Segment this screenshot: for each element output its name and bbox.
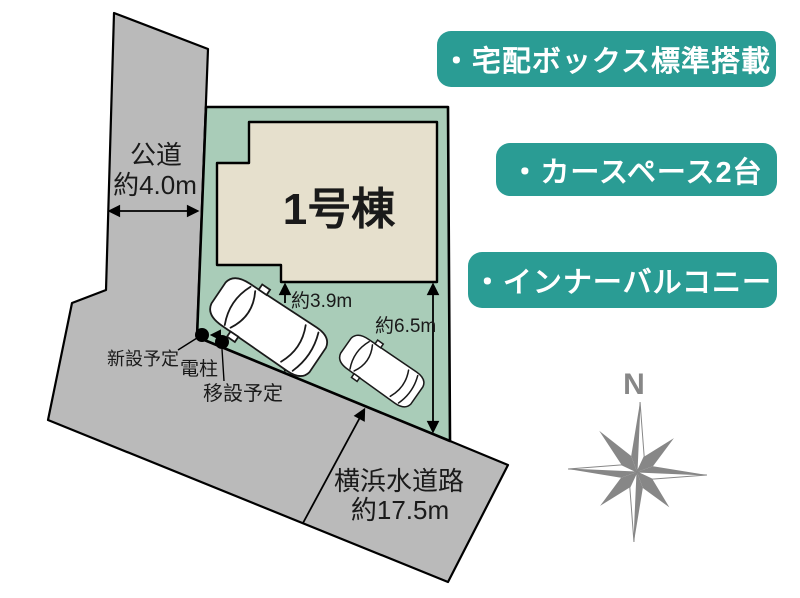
building-label: 1号棟	[283, 187, 395, 233]
feature-banner-car-space: ・カースペース2台	[496, 143, 777, 196]
compass-north-label: N	[623, 368, 645, 402]
feature-banner-label: ・宅配ボックス標準搭載	[442, 38, 771, 80]
feature-banner-label: ・カースペース2台	[510, 149, 762, 191]
road-bottom-width: 約17.5m	[351, 497, 449, 524]
pole-move-label: 移設予定	[203, 384, 283, 405]
feature-banner-label: ・インナーバルコニー	[473, 259, 772, 301]
road-left-name: 公道	[130, 142, 182, 169]
pole-existing-dot	[215, 335, 229, 349]
feature-banner-delivery-box: ・宅配ボックス標準搭載	[437, 31, 776, 87]
pole-label: 電柱	[180, 360, 218, 380]
road-bottom-name: 横浜水道路	[334, 468, 464, 495]
dimension-depth-label: 約3.9m	[291, 292, 352, 312]
dimension-side-label: 約6.5m	[375, 317, 436, 337]
site-plan-flyer: 公道 約4.0m 1号棟 約3.9m 約6.5m 新設予定 電柱 移設予定 横浜…	[0, 0, 800, 598]
feature-banner-inner-balcony: ・インナーバルコニー	[468, 252, 777, 308]
compass-rose	[565, 399, 710, 545]
road-left-width: 約4.0m	[113, 172, 197, 199]
pole-new-dot	[195, 328, 209, 342]
pole-new-label: 新設予定	[107, 350, 179, 369]
